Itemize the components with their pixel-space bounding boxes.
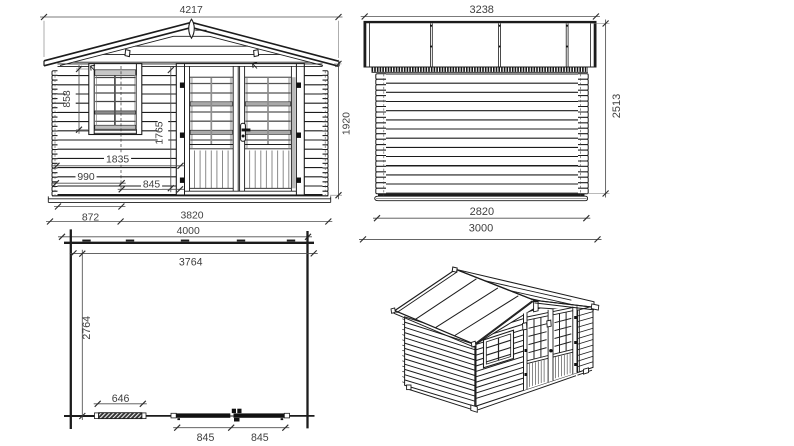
svg-text:3820: 3820 (180, 210, 203, 221)
svg-text:2820: 2820 (470, 206, 494, 218)
svg-text:845: 845 (197, 432, 215, 444)
svg-text:845: 845 (143, 179, 161, 190)
svg-text:872: 872 (82, 212, 100, 223)
svg-text:3000: 3000 (469, 222, 493, 234)
svg-text:1835: 1835 (106, 154, 129, 165)
svg-text:3764: 3764 (179, 257, 203, 269)
svg-text:2513: 2513 (611, 94, 623, 118)
svg-text:858: 858 (62, 90, 73, 108)
svg-text:3238: 3238 (469, 4, 493, 16)
svg-text:4217: 4217 (180, 5, 203, 16)
svg-text:4000: 4000 (177, 226, 200, 237)
svg-text:1920: 1920 (341, 112, 352, 135)
svg-text:1765: 1765 (155, 121, 166, 144)
svg-text:646: 646 (112, 393, 130, 405)
svg-text:990: 990 (77, 172, 95, 183)
svg-text:845: 845 (251, 432, 269, 444)
svg-text:2764: 2764 (81, 316, 93, 340)
